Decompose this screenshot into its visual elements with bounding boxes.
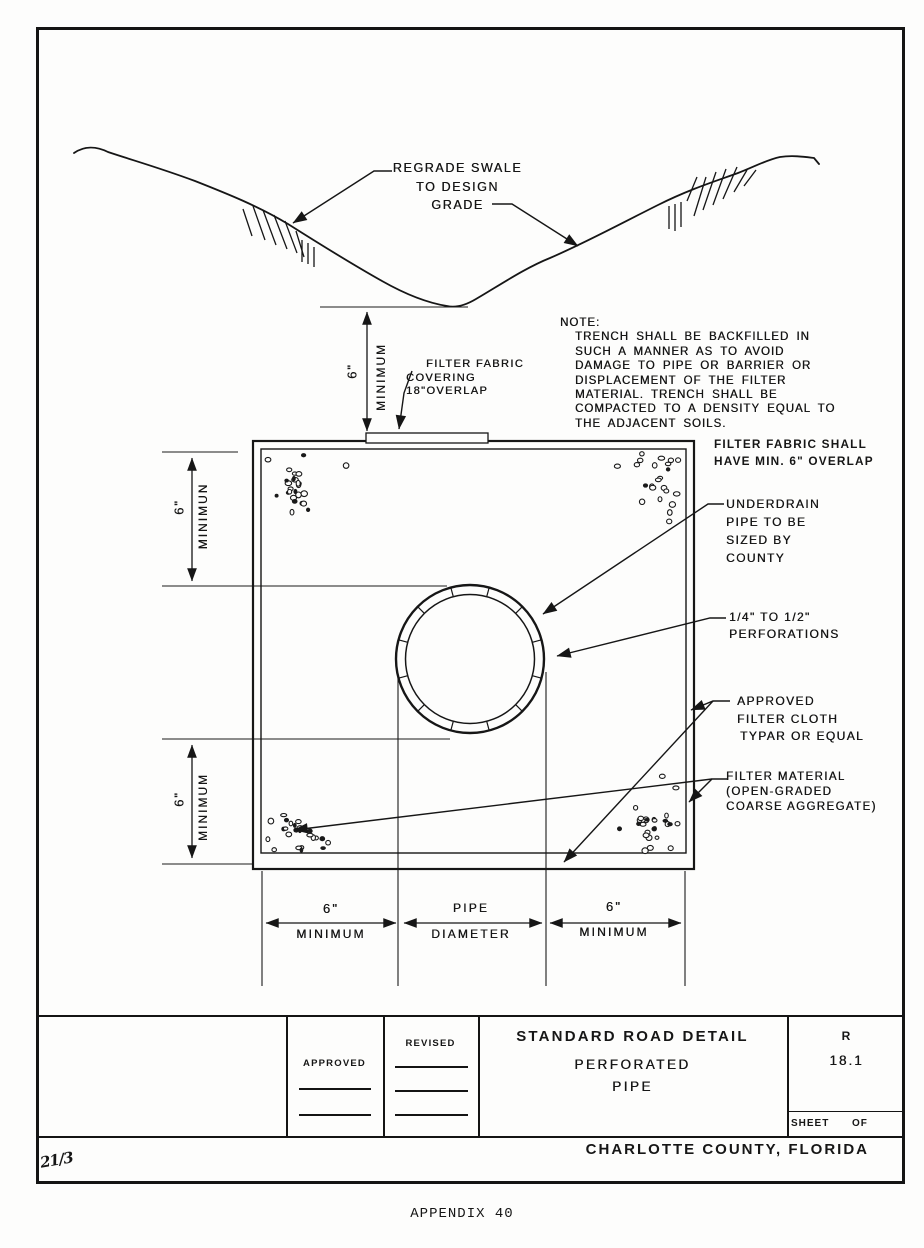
dim-lower-left-word: MINIMUM [196, 773, 210, 841]
sheet-label: SHEET [791, 1118, 829, 1129]
leader-underdrain [543, 504, 724, 614]
dim-bottom-center-value: PIPE [431, 901, 511, 915]
note-line: DAMAGE TO PIPE OR BARRIER OR [575, 359, 835, 373]
regrade-line: TO DESIGN [365, 178, 550, 197]
leader-perforations [557, 618, 726, 656]
regrade-line: GRADE [365, 196, 550, 215]
slope-hatching-right [669, 167, 756, 231]
callout-line: FILTER FABRIC [406, 358, 524, 372]
underdrain-callout: UNDERDRAIN PIPE TO BE SIZED BY COUNTY [726, 495, 820, 567]
dim-bottom-right-value: 6" [574, 899, 654, 914]
approved-label: APPROVED [288, 1058, 381, 1069]
callout-line: APPROVED [737, 693, 864, 711]
approved-signature-line [299, 1088, 371, 1090]
revised-signature-line [395, 1114, 468, 1116]
fabric-overlap-note: FILTER FABRIC SHALL HAVE MIN. 6" OVERLAP [714, 436, 874, 470]
note-line: THE ADJACENT SOILS. [575, 417, 835, 431]
titleblock-divider [286, 1015, 288, 1138]
dim-bottom-left-value: 6" [291, 901, 371, 916]
scanned-detail-sheet: REGRADE SWALE TO DESIGN GRADE NOTE: TREN… [0, 0, 924, 1248]
of-label: OF [852, 1118, 868, 1129]
fabric-overlap-line: FILTER FABRIC SHALL [714, 436, 874, 453]
fabric-overlap-line: HAVE MIN. 6" OVERLAP [714, 453, 874, 470]
dim-upper-left-word: MINIMUN [196, 483, 210, 550]
approved-signature-line [299, 1114, 371, 1116]
pipe-perforation-ticks [399, 588, 542, 731]
detail-letter: R [789, 1029, 904, 1043]
dim-bottom-right-word: MINIMUM [574, 925, 654, 939]
callout-line: COUNTY [726, 549, 820, 567]
callout-line: 1/4" TO 1/2" [729, 609, 840, 626]
slope-hatching-left [243, 206, 314, 267]
callout-line: 18"OVERLAP [406, 385, 524, 399]
leader-filter-material-left [294, 779, 712, 830]
appendix-label: APPENDIX 40 [0, 1206, 924, 1222]
dim-lower-left-value: 6" [172, 791, 187, 807]
callout-line: SIZED BY [726, 531, 820, 549]
sheet-of-rule [788, 1111, 905, 1112]
leader-lines [293, 171, 730, 862]
regrade-line: REGRADE SWALE [365, 159, 550, 178]
trench-box [253, 441, 694, 869]
leader-filter-cloth-wall [691, 701, 730, 710]
subtitle-line: PERFORATED [480, 1054, 785, 1076]
callout-line: COARSE AGGREGATE) [726, 800, 877, 815]
titleblock-top-rule [36, 1015, 905, 1017]
underdrain-pipe [396, 585, 544, 733]
note-heading: NOTE: [560, 316, 835, 330]
dim-trench-cover-value: 6" [345, 363, 360, 379]
detail-title: STANDARD ROAD DETAIL [480, 1028, 785, 1045]
revised-label: REVISED [385, 1038, 476, 1049]
callout-line: PERFORATIONS [729, 626, 840, 643]
filter-cloth-callout: APPROVED FILTER CLOTH TYPAR OR EQUAL [737, 693, 864, 746]
note-line: DISPLACEMENT OF THE FILTER [575, 374, 835, 388]
callout-line: PIPE TO BE [726, 513, 820, 531]
detail-number: 18.1 [789, 1053, 904, 1068]
note-line: TRENCH SHALL BE BACKFILLED IN [575, 330, 835, 344]
revised-signature-line [395, 1090, 468, 1092]
callout-line: (OPEN-GRADED [726, 785, 877, 800]
note-line: MATERIAL. TRENCH SHALL BE [575, 388, 835, 402]
callout-line: TYPAR OR EQUAL [737, 728, 864, 746]
titleblock-divider [383, 1015, 385, 1138]
filter-material-callout: FILTER MATERIAL (OPEN-GRADED COARSE AGGR… [726, 770, 877, 815]
fabric-covering-callout: FILTER FABRIC COVERING 18"OVERLAP [406, 358, 524, 399]
titleblock-row-rule [36, 1136, 905, 1138]
detail-subtitle: PERFORATED PIPE [480, 1054, 785, 1098]
callout-line: COVERING [406, 372, 524, 386]
callout-line: FILTER CLOTH [737, 711, 864, 729]
note-line: COMPACTED TO A DENSITY EQUAL TO [575, 402, 835, 416]
dim-bottom-center-word: DIAMETER [431, 927, 511, 941]
note-line: SUCH A MANNER AS TO AVOID [575, 345, 835, 359]
subtitle-line: PIPE [480, 1076, 785, 1098]
gravel-aggregate [265, 452, 680, 854]
dim-upper-left-value: 6" [172, 499, 187, 515]
dim-trench-cover-word: MINIMUM [374, 343, 388, 411]
backfill-note: NOTE: TRENCH SHALL BE BACKFILLED IN SUCH… [560, 316, 835, 431]
dim-bottom-left-word: MINIMUM [291, 927, 371, 941]
fabric-overlap-strip [366, 433, 488, 443]
county-title: CHARLOTTE COUNTY, FLORIDA [36, 1141, 869, 1158]
perforations-callout: 1/4" TO 1/2" PERFORATIONS [729, 609, 840, 643]
regrade-swale-label: REGRADE SWALE TO DESIGN GRADE [365, 159, 550, 215]
revised-signature-line [395, 1066, 468, 1068]
callout-line: UNDERDRAIN [726, 495, 820, 513]
callout-line: FILTER MATERIAL [726, 770, 877, 785]
